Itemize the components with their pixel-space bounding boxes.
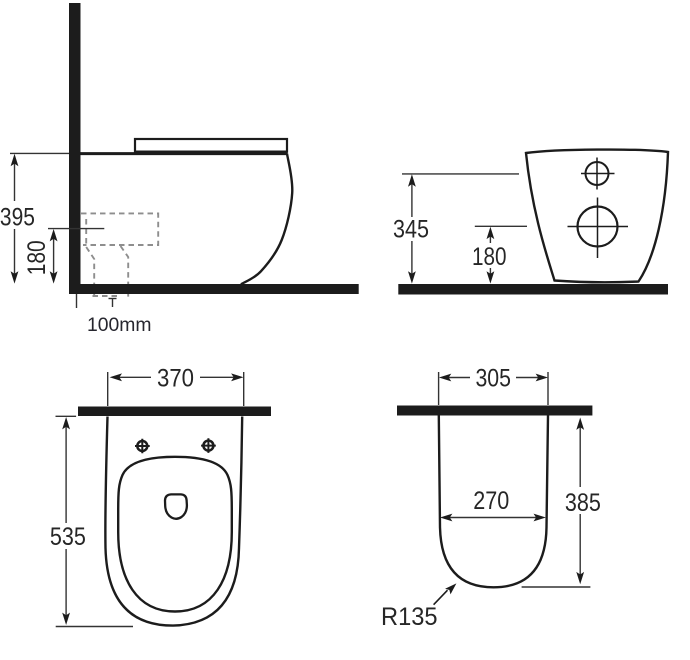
svg-text:180: 180 — [23, 240, 51, 275]
svg-text:395: 395 — [0, 203, 35, 231]
svg-text:180: 180 — [472, 243, 507, 271]
svg-text:305: 305 — [475, 364, 511, 392]
svg-text:R135: R135 — [381, 603, 438, 631]
svg-text:370: 370 — [157, 364, 194, 392]
svg-text:345: 345 — [393, 215, 429, 243]
svg-text:270: 270 — [473, 487, 509, 515]
svg-text:100mm: 100mm — [87, 315, 152, 336]
svg-text:535: 535 — [50, 523, 86, 551]
svg-text:385: 385 — [565, 489, 601, 517]
